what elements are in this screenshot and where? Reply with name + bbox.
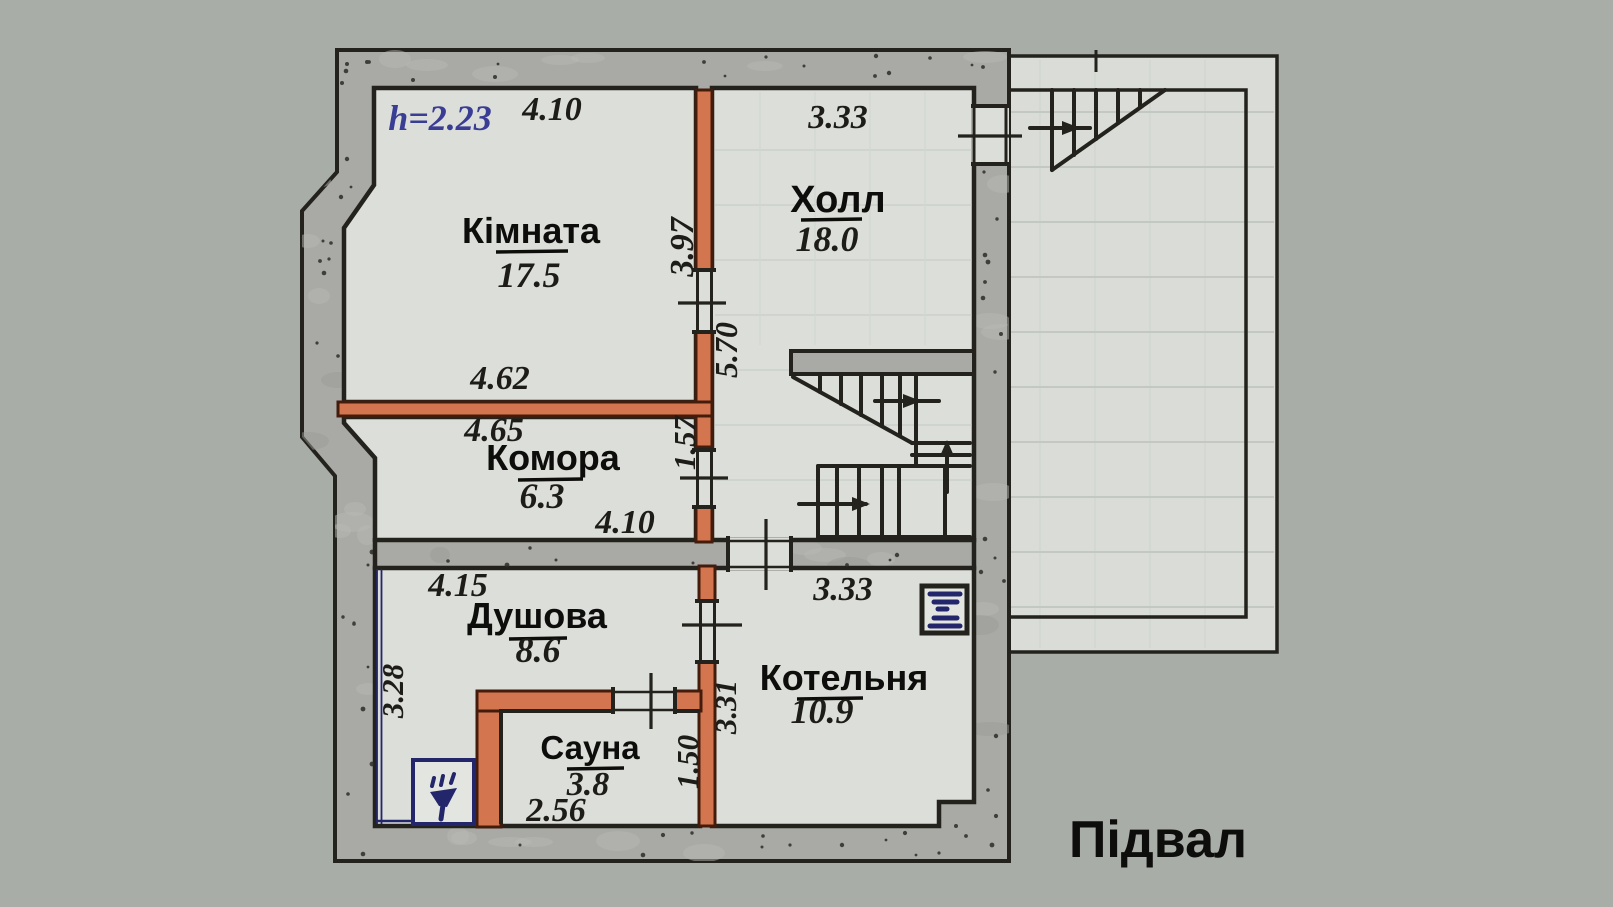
svg-text:Холл: Холл bbox=[790, 179, 885, 221]
svg-text:4.10: 4.10 bbox=[594, 504, 655, 541]
svg-text:4.65: 4.65 bbox=[463, 412, 524, 449]
svg-text:3.97: 3.97 bbox=[664, 215, 701, 278]
svg-text:4.10: 4.10 bbox=[521, 91, 582, 128]
svg-text:3.31: 3.31 bbox=[708, 680, 743, 735]
svg-text:3.33: 3.33 bbox=[807, 99, 868, 136]
svg-text:17.5: 17.5 bbox=[498, 255, 561, 295]
svg-text:Сауна: Сауна bbox=[540, 729, 640, 766]
svg-text:4.15: 4.15 bbox=[427, 567, 488, 604]
svg-text:18.0: 18.0 bbox=[796, 219, 859, 259]
svg-text:3.28: 3.28 bbox=[375, 663, 410, 719]
svg-text:8.6: 8.6 bbox=[516, 630, 561, 670]
svg-text:3.33: 3.33 bbox=[812, 571, 873, 608]
svg-text:1.57: 1.57 bbox=[667, 414, 702, 470]
svg-text:10.9: 10.9 bbox=[791, 691, 854, 731]
svg-text:6.3: 6.3 bbox=[520, 476, 565, 516]
svg-text:2.56: 2.56 bbox=[525, 792, 586, 829]
svg-text:1.50: 1.50 bbox=[670, 735, 705, 789]
svg-text:Кімната: Кімната bbox=[462, 210, 601, 251]
svg-text:5.70: 5.70 bbox=[708, 322, 744, 378]
svg-text:Підвал: Підвал bbox=[1069, 811, 1247, 869]
svg-text:h=2.23: h=2.23 bbox=[388, 98, 492, 138]
svg-text:4.62: 4.62 bbox=[469, 360, 530, 397]
